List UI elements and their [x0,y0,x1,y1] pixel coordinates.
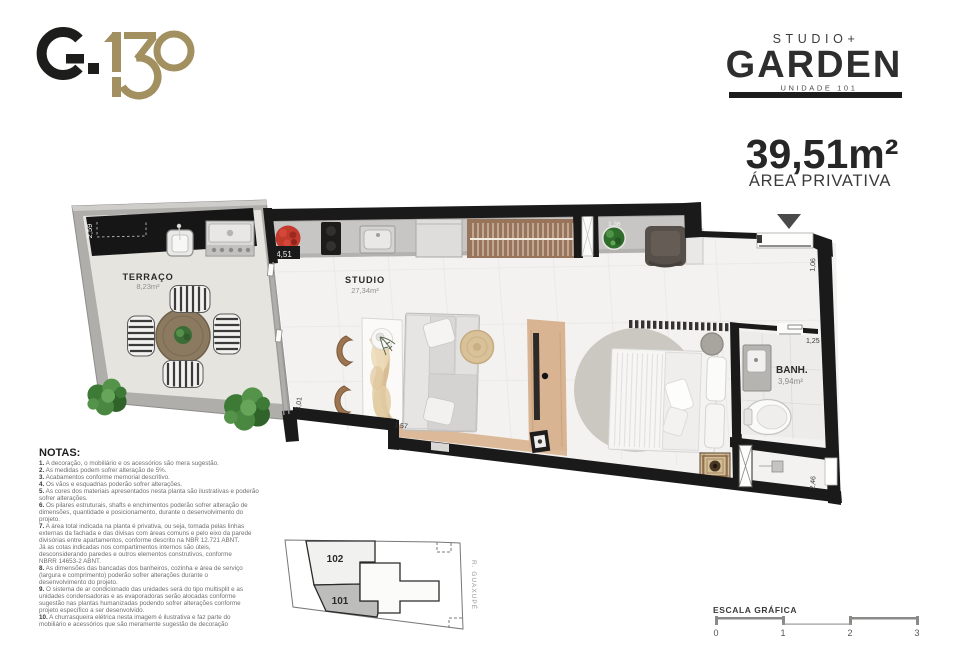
svg-text:NOTAS:: NOTAS: [39,447,80,459]
svg-text:desenvolvimento do projeto.: desenvolvimento do projeto. [39,579,118,586]
svg-text:1: 1 [780,628,785,638]
svg-text:3: 3 [914,628,919,638]
svg-text:1,06: 1,06 [810,258,818,272]
svg-text:BANH.: BANH. [776,365,808,376]
svg-text:GARDEN: GARDEN [726,44,903,86]
svg-text:externas da fachada e das divi: externas da fachada e das divisas com ár… [39,530,252,537]
svg-text:projeto.: projeto. [39,516,60,523]
svg-text:STUDIO: STUDIO [345,275,385,285]
svg-text:4. Os vãos e esquadrias poderã: 4. Os vãos e esquadrias poderão sofrer a… [39,481,182,488]
svg-text:102: 102 [327,554,344,565]
svg-text:R. GUAXUPÉ: R. GUAXUPÉ [470,560,479,610]
svg-text:sugestão nas plantas humanizad: sugestão nas plantas humanizadas podendo… [39,600,241,607]
svg-text:2. As medidas podem sofrer alt: 2. As medidas podem sofrer alteração de … [39,467,167,474]
svg-text:101: 101 [332,596,349,607]
svg-text:projeto específico a ser desen: projeto específico a ser desenvolvido. [39,607,145,614]
svg-text:divisórias entre apartamentos,: divisórias entre apartamentos, conforme … [39,537,239,544]
svg-text:desconsiderando paredes e outr: desconsiderando paredes e outros element… [39,551,232,558]
svg-text:4,51: 4,51 [276,250,292,259]
svg-text:9. O sistema de ar condicionad: 9. O sistema de ar condicionado das unid… [39,586,243,593]
svg-text:2: 2 [847,628,852,638]
svg-text:1. A decoração, o mobiliário e: 1. A decoração, o mobiliário e os acessó… [39,460,219,467]
svg-text:Já as cotas indicadas nos comp: Já as cotas indicadas nos compartimentos… [39,544,211,551]
svg-text:2,46: 2,46 [810,476,818,490]
svg-text:3,01: 3,01 [295,397,303,411]
svg-text:sofrer alterações.: sofrer alterações. [39,495,88,502]
svg-text:2,59: 2,59 [85,224,94,239]
svg-text:TERRAÇO: TERRAÇO [122,272,173,282]
svg-text:7. A área total indicada na pl: 7. A área total indicada na planta é pri… [39,523,244,530]
svg-text:39,51m²: 39,51m² [746,131,899,177]
svg-text:5. As cores dos materiais apre: 5. As cores dos materiais apresentados n… [39,488,259,495]
svg-text:ÁREA PRIVATIVA: ÁREA PRIVATIVA [749,171,891,190]
svg-text:mobiliário e acessórios que sã: mobiliário e acessórios que são merament… [39,621,229,628]
svg-text:UNIDADE 101: UNIDADE 101 [781,84,858,93]
svg-text:1,25: 1,25 [806,338,820,345]
svg-text:10. A churrasqueira elétrica n: 10. A churrasqueira elétrica nesta image… [39,614,231,621]
svg-text:dimensões, quantidade e posici: dimensões, quantidade e posicionamento, … [39,509,244,516]
svg-text:3. Acabamentos conforme memori: 3. Acabamentos conforme memorial descrit… [39,474,170,481]
svg-text:(largura e comprimento) poderã: (largura e comprimento) poderão sofrer a… [39,572,209,579]
svg-text:0: 0 [713,628,718,638]
svg-text:NBRR 14653-2 ABNT.: NBRR 14653-2 ABNT. [39,558,101,565]
svg-text:ESCALA GRÁFICA: ESCALA GRÁFICA [713,605,797,615]
svg-text:8. As dimensões das bancadas d: 8. As dimensões das bancadas dos banheir… [39,565,243,572]
svg-text:8,23m²: 8,23m² [136,282,160,291]
svg-text:3,94m²: 3,94m² [778,377,803,386]
svg-text:27,34m²: 27,34m² [351,286,379,295]
svg-text:6. Os pilares estruturais, sha: 6. Os pilares estruturais, shafts e ench… [39,502,248,509]
svg-text:unidades condensadoras e as ev: unidades condensadoras e as evaporadoras… [39,593,236,600]
